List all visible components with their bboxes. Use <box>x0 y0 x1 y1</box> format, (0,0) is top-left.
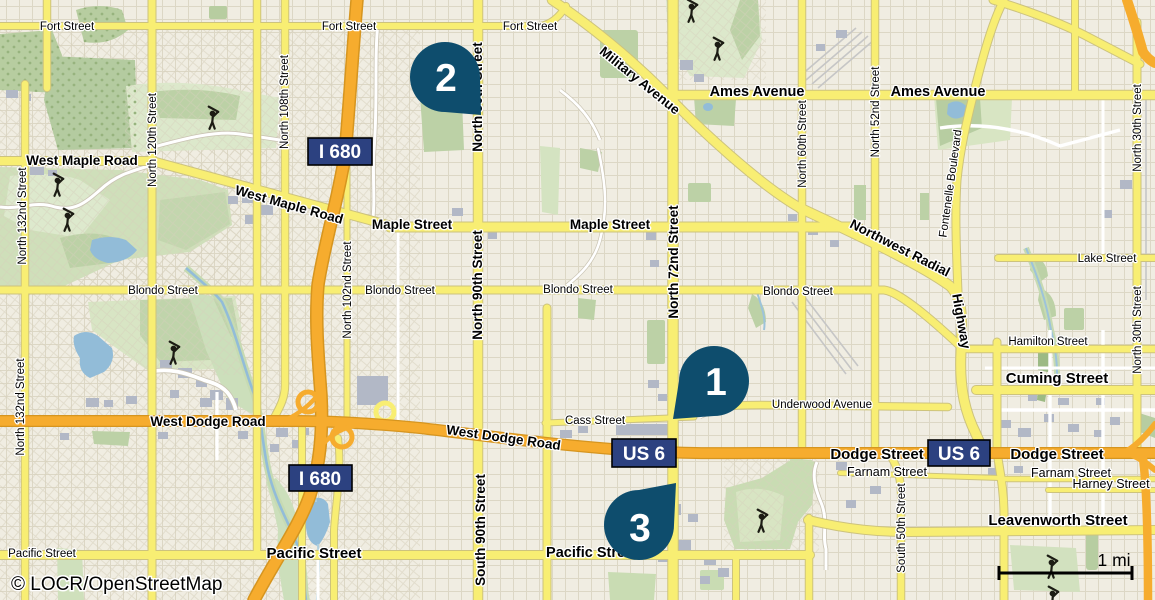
svg-text:Fort Street: Fort Street <box>503 21 558 33</box>
svg-text:I 680: I 680 <box>319 142 361 163</box>
svg-text:I 680: I 680 <box>299 469 341 490</box>
svg-text:Lake Street: Lake Street <box>1078 253 1138 265</box>
svg-text:West Dodge Road: West Dodge Road <box>150 414 265 429</box>
svg-text:South 50th Street: South 50th Street <box>896 482 908 572</box>
svg-text:Blondo Street: Blondo Street <box>128 285 198 297</box>
svg-text:Blondo Street: Blondo Street <box>763 286 833 298</box>
svg-text:Cass Street: Cass Street <box>565 415 626 427</box>
svg-text:Harney Street: Harney Street <box>1072 477 1150 491</box>
svg-text:North 30th Street: North 30th Street <box>1132 83 1144 171</box>
svg-text:Pacific Street: Pacific Street <box>266 545 361 562</box>
svg-text:Ames Avenue: Ames Avenue <box>891 84 986 100</box>
svg-text:North 52nd Street: North 52nd Street <box>870 66 882 158</box>
svg-text:South 90th Street: South 90th Street <box>473 474 488 586</box>
svg-text:Dodge Street: Dodge Street <box>830 446 923 463</box>
svg-text:Leavenworth Street: Leavenworth Street <box>988 512 1127 529</box>
svg-text:Hamilton Street: Hamilton Street <box>1008 336 1088 348</box>
svg-text:Underwood Avenue: Underwood Avenue <box>772 399 872 411</box>
svg-text:North 132nd Street: North 132nd Street <box>15 358 27 456</box>
svg-text:© LOCR/OpenStreetMap: © LOCR/OpenStreetMap <box>11 574 222 595</box>
svg-text:North 90th Street: North 90th Street <box>470 230 485 340</box>
svg-text:Dodge Street: Dodge Street <box>1010 446 1103 463</box>
svg-text:3: 3 <box>629 507 651 550</box>
svg-text:West Maple Road: West Maple Road <box>26 153 138 168</box>
svg-text:1 mi: 1 mi <box>1097 550 1130 570</box>
svg-text:North 72nd Street: North 72nd Street <box>666 205 681 319</box>
svg-text:1: 1 <box>705 361 727 404</box>
svg-text:North 30th Street: North 30th Street <box>1132 285 1144 373</box>
svg-text:North 102nd Street: North 102nd Street <box>342 241 354 339</box>
svg-text:Farnam Street: Farnam Street <box>847 465 927 479</box>
svg-text:Maple Street: Maple Street <box>372 217 453 232</box>
svg-text:Cuming Street: Cuming Street <box>1006 370 1109 387</box>
svg-text:Fort Street: Fort Street <box>322 21 377 33</box>
svg-text:Fort Street: Fort Street <box>40 21 95 33</box>
svg-text:US 6: US 6 <box>623 444 665 465</box>
svg-text:North 60th Street: North 60th Street <box>797 99 809 187</box>
svg-text:2: 2 <box>435 57 457 100</box>
svg-text:North 120th Street: North 120th Street <box>147 92 159 187</box>
svg-text:Blondo Street: Blondo Street <box>365 285 435 297</box>
svg-text:Maple Street: Maple Street <box>570 217 651 232</box>
svg-text:North 108th Street: North 108th Street <box>279 54 291 149</box>
svg-text:US 6: US 6 <box>938 444 980 465</box>
svg-text:Blondo Street: Blondo Street <box>543 284 613 296</box>
svg-text:North 132nd Street: North 132nd Street <box>17 167 29 265</box>
svg-text:Ames Avenue: Ames Avenue <box>710 84 805 100</box>
svg-text:Pacific Street: Pacific Street <box>8 548 77 560</box>
